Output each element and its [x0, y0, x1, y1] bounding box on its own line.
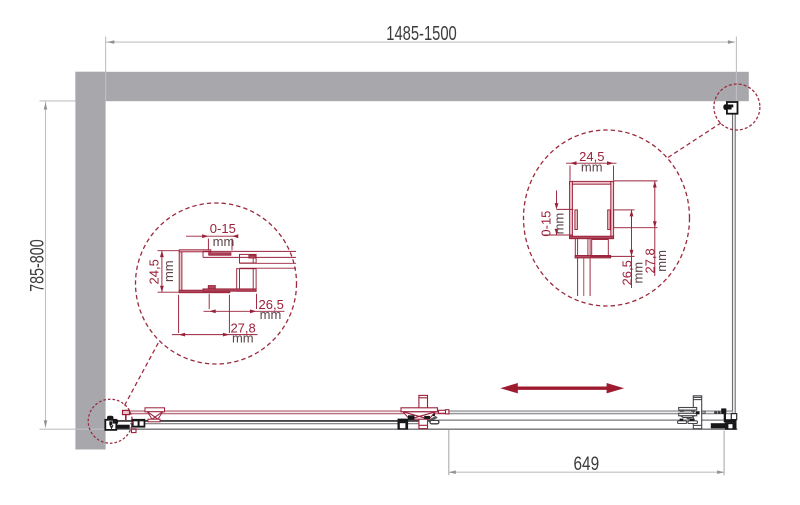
svg-text:1485-1500: 1485-1500 [386, 23, 457, 45]
svg-text:mm: mm [161, 260, 176, 282]
svg-text:mm: mm [213, 234, 235, 249]
svg-text:mm: mm [260, 307, 282, 322]
svg-text:mm: mm [232, 330, 254, 345]
svg-text:785-800: 785-800 [27, 239, 48, 292]
svg-text:mm: mm [654, 250, 669, 272]
svg-text:649: 649 [574, 454, 600, 475]
svg-text:mm: mm [581, 160, 603, 175]
svg-text:mm: mm [551, 213, 566, 235]
svg-text:24,5: 24,5 [146, 259, 161, 284]
